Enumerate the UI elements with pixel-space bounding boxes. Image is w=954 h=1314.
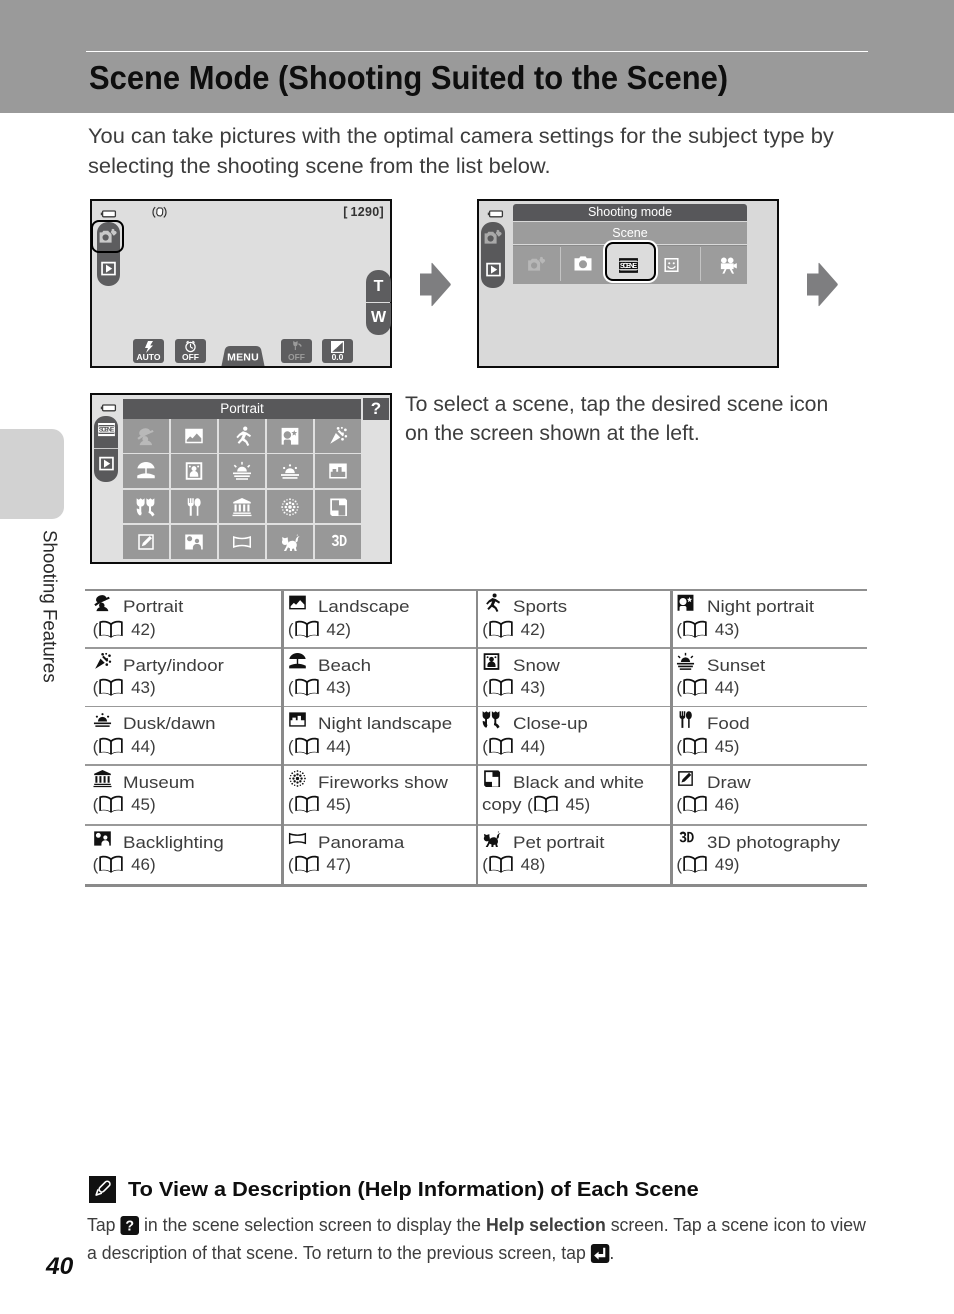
svg-text:?: ? bbox=[125, 1218, 134, 1234]
svg-text:MENU: MENU bbox=[227, 352, 259, 364]
svg-text:SCENE: SCENE bbox=[99, 427, 115, 434]
svg-text:SCENE: SCENE bbox=[620, 263, 638, 270]
